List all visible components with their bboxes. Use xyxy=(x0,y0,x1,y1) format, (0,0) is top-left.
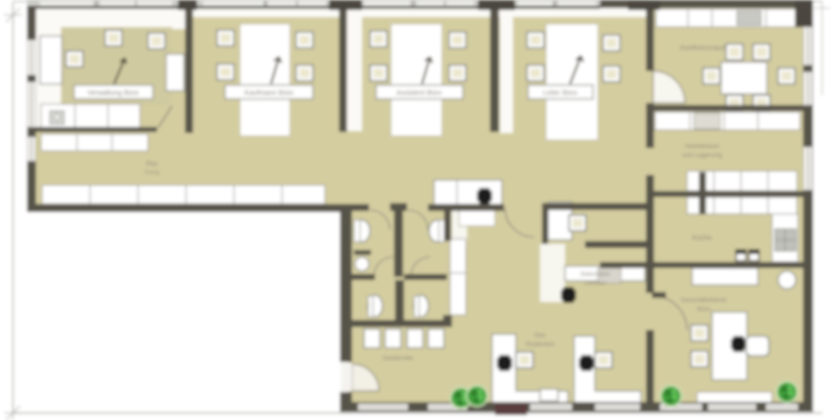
svg-text:Küche: Küche xyxy=(692,235,712,242)
svg-text:Kaufmann Büro: Kaufmann Büro xyxy=(245,90,294,97)
svg-text:Assistent Büro: Assistent Büro xyxy=(396,90,441,97)
svg-text:Leiter Büro: Leiter Büro xyxy=(543,90,577,97)
svg-text:Das: Das xyxy=(534,332,546,339)
svg-text:Zimmer: Zimmer xyxy=(584,280,607,287)
svg-text:Sekretärin: Sekretärin xyxy=(580,271,610,278)
svg-text:Garderobe: Garderobe xyxy=(382,355,413,362)
svg-text:Abstellraum: Abstellraum xyxy=(685,143,719,150)
svg-text:Flur: Flur xyxy=(146,161,159,168)
svg-text:Geschäftsführer: Geschäftsführer xyxy=(681,297,728,304)
svg-text:Gang: Gang xyxy=(145,170,160,176)
svg-text:Konferenzraum: Konferenzraum xyxy=(680,45,728,52)
svg-text:und Lagerung: und Lagerung xyxy=(682,152,723,159)
svg-text:Büro: Büro xyxy=(697,306,711,313)
svg-text:Studenten: Studenten xyxy=(525,341,555,348)
svg-text:Verwaltung Büro: Verwaltung Büro xyxy=(87,90,138,97)
